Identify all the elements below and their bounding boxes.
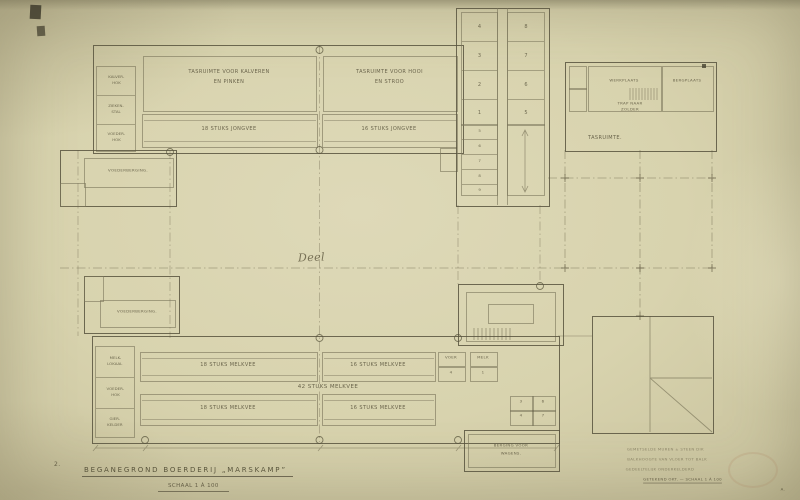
lower-side-cells: MELK- LOKAAL VOEDER- HOK GIER- KELDER: [95, 346, 135, 438]
side-cell-label: KELDER: [107, 423, 122, 428]
side-cell-label: MELK-: [109, 356, 121, 361]
stall-slot: 8: [462, 170, 497, 185]
upper-room-right-label-2: EN STROO: [323, 80, 456, 85]
left-wing-lower-label: VOEDERBERGING.: [108, 310, 166, 314]
right-room-right-label: BERGPLAATS: [668, 79, 707, 83]
grid-number: 3: [512, 400, 529, 404]
stairs-note-1: TRAP NAAR: [607, 102, 654, 106]
stall-slot: 7: [462, 155, 497, 170]
right-room-left-label: WERKPLAATS: [596, 79, 652, 83]
pen-number: 3: [478, 53, 481, 59]
grid-number: 7: [534, 414, 551, 418]
stairs-note-2: ZOLDER: [607, 108, 654, 112]
upper-stall-right-label: 16 STUKS JONGVEE: [322, 127, 456, 132]
mini-box-b-number: 1: [473, 371, 493, 375]
stall-slot: 9: [462, 185, 497, 197]
lower-barn-center-label: 42 STUKS MELKVEE: [238, 385, 418, 391]
pen-number: 7: [524, 53, 527, 59]
stall-number: 6: [478, 144, 480, 149]
numbered-pen: 3: [462, 42, 497, 71]
pen-number: 2: [478, 82, 481, 88]
mini-box-a-label: VOER: [441, 356, 461, 360]
stall-slot: 6: [462, 140, 497, 155]
drawing-title: BEGANEGROND BOERDERIJ „MARSKAMP”: [82, 467, 293, 477]
right-building-corner-mark: [702, 64, 706, 68]
side-cell-label: STAL: [111, 110, 120, 115]
left-wing-lower-room: [100, 300, 176, 328]
courtyard-label: Deel: [298, 252, 325, 264]
row-b-right-label: 16 STUKS MELKVEE: [322, 406, 434, 411]
strip-right-cells: 8 7 6 5: [507, 12, 545, 126]
wagon-shed-label-1: BERGING VOOR: [474, 444, 547, 448]
upper-room-right-label-1: TASRUIMTE VOOR HOOI: [323, 70, 456, 75]
side-cell: VOEDER- HOK: [97, 125, 135, 151]
side-cell: ZIEKEN- STAL: [97, 96, 135, 125]
right-hall-label: TASRUIMTE.: [588, 136, 622, 141]
note-line-4: GETEKEND OKT. — SCHAAL 1 À 100: [643, 478, 722, 483]
upper-room-left-label-2: EN PINKEN: [143, 80, 315, 85]
numbered-pen: 7: [508, 42, 544, 71]
pen-number: 8: [524, 24, 527, 30]
mini-box-b-label: MELK: [473, 356, 493, 360]
side-cell-label: HOK: [112, 81, 121, 86]
numbered-pen: 8: [508, 13, 544, 42]
square-building-outline: [592, 316, 714, 434]
left-wing-upper-label: VOEDERBERGING.: [94, 169, 163, 173]
numbered-pen: 2: [462, 71, 497, 100]
stall-number: 8: [478, 174, 480, 179]
note-line-2: BALKHOOGTE VAN VLOER TOT BALK: [627, 458, 707, 462]
feed-kitchen-island: [488, 304, 534, 324]
side-cell-label: ZIEKEN-: [108, 104, 124, 109]
wagon-shed-label-2: WAGENS.: [474, 452, 547, 456]
row-b-left-label: 18 STUKS MELKVEE: [140, 406, 316, 411]
side-cell: VOEDER- HOK: [96, 378, 134, 409]
side-cell-label: HOK: [112, 138, 121, 143]
side-cell-label: VOEDER-: [107, 132, 125, 137]
pen-number: 1: [478, 110, 481, 116]
drawing-scale: SCHAAL 1 À 100: [158, 484, 229, 492]
strip-left-cells: 4 3 2 1: [461, 12, 498, 126]
stall-number: 9: [478, 188, 480, 193]
right-building-cell-1: [569, 66, 587, 90]
survey-cross-ticks: [561, 174, 716, 320]
stall-number: 5: [478, 129, 480, 134]
side-cell-label: HOK: [111, 393, 120, 398]
pen-number: 5: [524, 110, 527, 116]
blueprint-sheet: TASRUIMTE VOOR KALVEREN EN PINKEN TASRUI…: [0, 0, 800, 500]
pen-number: 6: [524, 82, 527, 88]
stall-slot: 5: [462, 125, 497, 140]
upper-stall-left-label: 18 STUKS JONGVEE: [142, 127, 316, 132]
numbered-pen: 4: [462, 13, 497, 42]
left-wing-upper-room: [84, 158, 174, 188]
note-line-3: GEDEELTELIJK ONDERKELDERD: [626, 468, 695, 472]
mini-box-a-number: 4: [441, 371, 461, 375]
upper-side-cells: KALVER- HOK ZIEKEN- STAL VOEDER- HOK: [96, 66, 136, 152]
strip-stall-rows: 5 6 7 8 9: [461, 124, 498, 196]
right-building-room-right: [662, 66, 714, 112]
side-cell: KALVER- HOK: [97, 67, 135, 96]
left-wing-upper-closet: [60, 183, 86, 207]
sheet-number: 2.: [54, 462, 61, 468]
corner-mark: A.: [781, 488, 785, 492]
side-cell-label: VOEDER-: [106, 387, 124, 392]
row-a-right-label: 16 STUKS MELKVEE: [322, 363, 434, 368]
strip-right-room: [507, 124, 545, 196]
row-a-left-label: 18 STUKS MELKVEE: [140, 363, 316, 368]
grid-number: 6: [534, 400, 551, 404]
numbered-pen: 6: [508, 71, 544, 100]
side-cell-label: KALVER-: [108, 75, 124, 80]
side-cell-label: GIER-: [110, 417, 121, 422]
numbered-pen: 1: [462, 100, 497, 126]
numbered-pen: 5: [508, 100, 544, 126]
upper-room-left-label-1: TASRUIMTE VOOR KALVEREN: [143, 70, 315, 75]
side-cell: MELK- LOKAAL: [96, 347, 134, 378]
pen-number: 4: [478, 24, 481, 30]
side-cell-label: LOKAAL: [107, 362, 122, 367]
stall-number: 7: [478, 159, 480, 164]
note-line-1: GEMETSELDE MUREN ± STEEN DIK: [627, 448, 704, 452]
side-cell: GIER- KELDER: [96, 409, 134, 437]
grid-number: 4: [512, 414, 529, 418]
left-wing-lower-closet: [84, 276, 104, 302]
right-building-cell-2: [569, 88, 587, 112]
